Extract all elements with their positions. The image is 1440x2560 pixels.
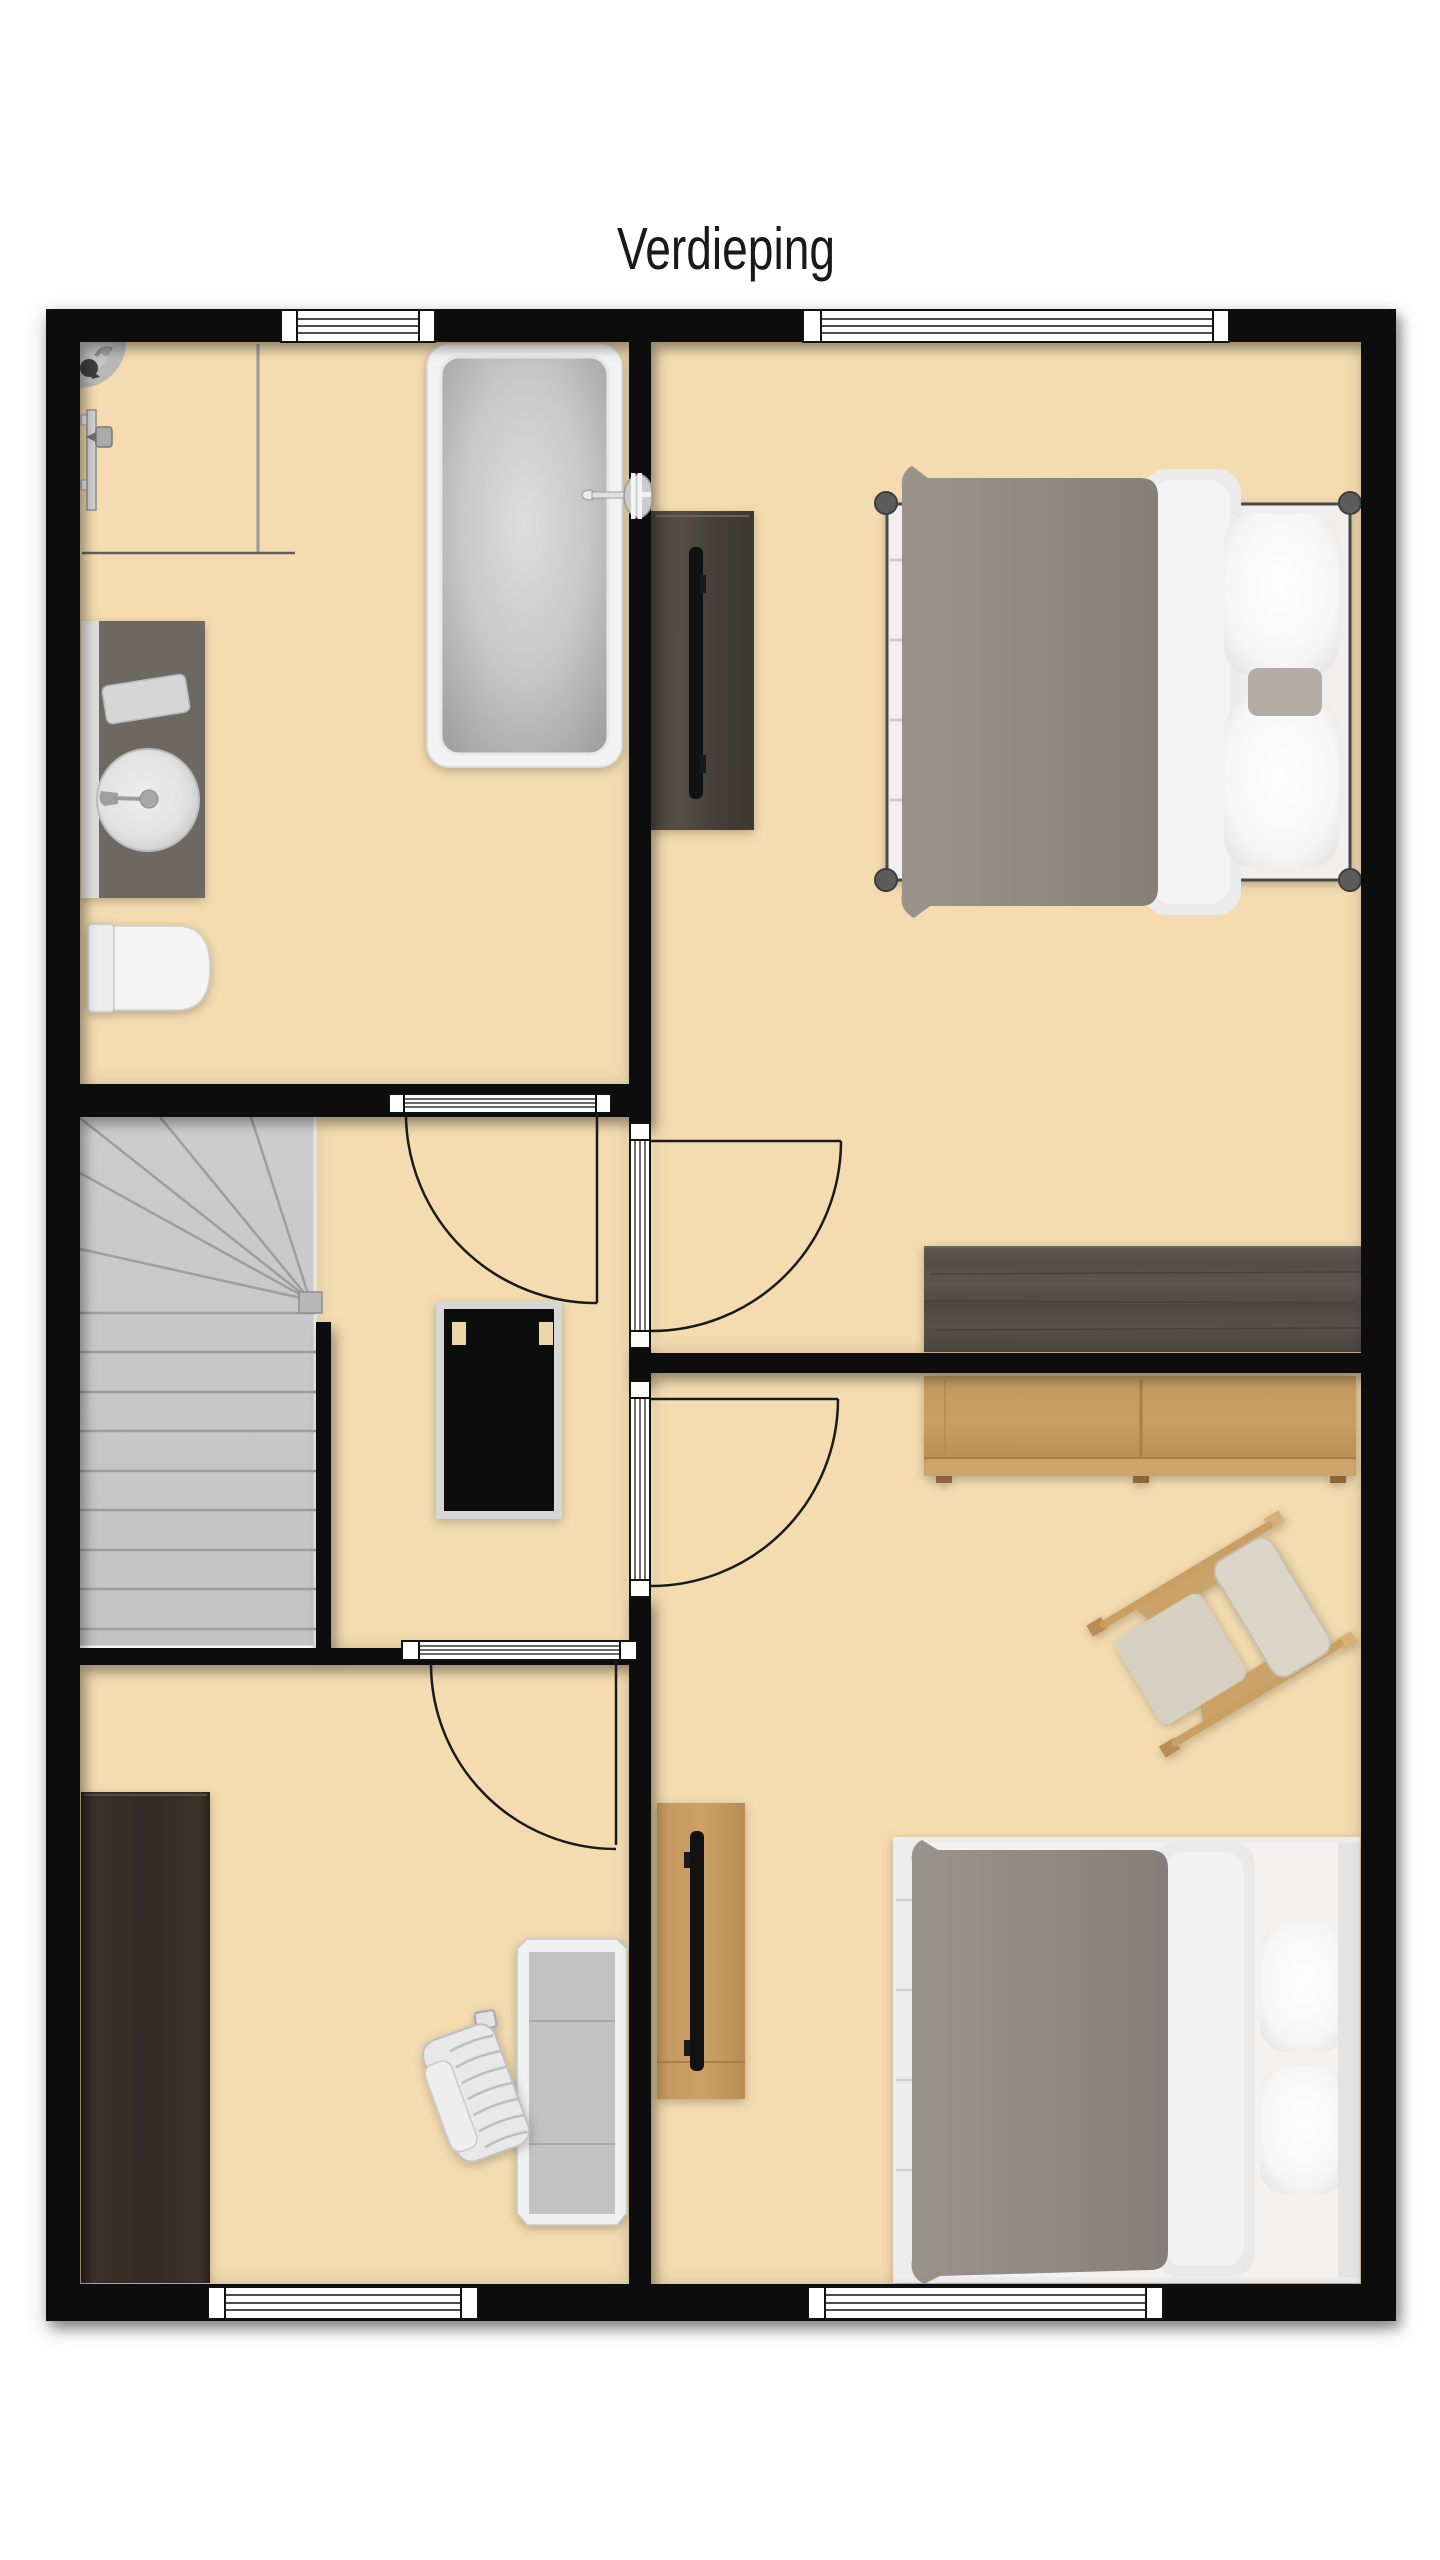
svg-text:Verdieping: Verdieping xyxy=(617,216,835,282)
